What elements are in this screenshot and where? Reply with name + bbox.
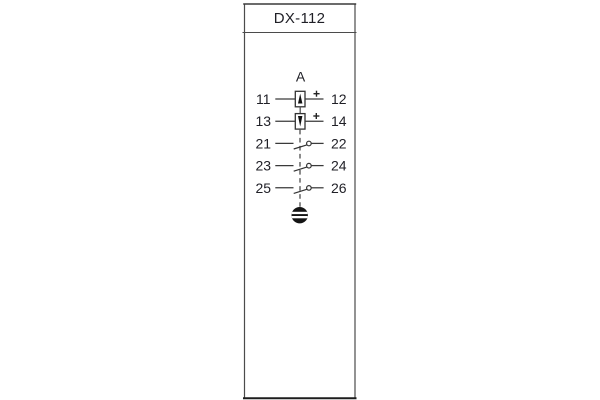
svg-text:24: 24 bbox=[331, 158, 347, 174]
svg-text:25: 25 bbox=[256, 180, 272, 196]
svg-text:26: 26 bbox=[331, 180, 347, 196]
svg-text:22: 22 bbox=[331, 135, 347, 151]
svg-text:A: A bbox=[296, 69, 306, 85]
svg-text:12: 12 bbox=[331, 91, 347, 107]
svg-text:13: 13 bbox=[256, 113, 272, 129]
svg-text:DX-112: DX-112 bbox=[274, 10, 326, 27]
svg-text:21: 21 bbox=[256, 135, 272, 151]
svg-text:23: 23 bbox=[256, 158, 272, 174]
svg-text:14: 14 bbox=[331, 113, 347, 129]
svg-text:11: 11 bbox=[256, 91, 271, 107]
